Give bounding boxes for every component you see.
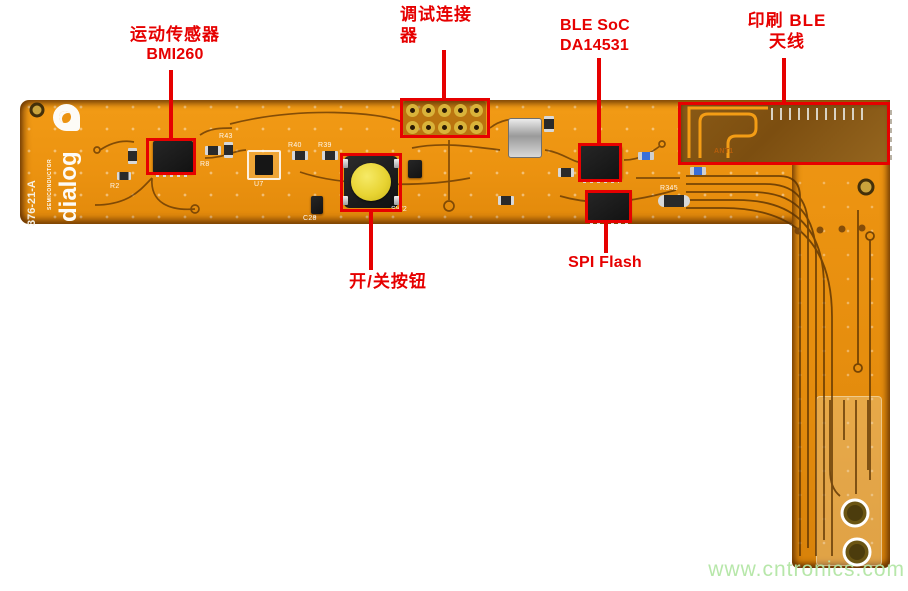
label-ble-soc-line1: BLE SoC <box>560 16 670 36</box>
label-printed-antenna-line1: 印刷 BLE <box>742 10 832 31</box>
leader-line-spi-flash <box>604 223 608 253</box>
smd-component <box>498 196 514 205</box>
smd-component <box>205 146 221 155</box>
label-debug-connector: 调试连接 器 <box>400 4 500 47</box>
highlight-box-antenna <box>678 102 890 165</box>
label-spi-flash-text: SPI Flash <box>550 253 660 273</box>
highlight-box-spi-flash <box>585 190 632 223</box>
silkscreen-ref: R40 <box>288 142 302 149</box>
leader-line-ble-soc <box>597 58 601 143</box>
smd-component <box>128 148 137 164</box>
leader-line-antenna <box>782 58 786 102</box>
site-watermark: www.cntronics.com <box>708 558 905 582</box>
silkscreen-ref: R43 <box>219 133 233 140</box>
smd-component <box>224 142 233 158</box>
label-motion-sensor: 运动传感器 BMI260 <box>110 24 240 65</box>
label-motion-sensor-line1: 运动传感器 <box>110 24 240 45</box>
small-ic-u7 <box>247 150 281 180</box>
label-spi-flash: SPI Flash <box>550 253 660 273</box>
crystal-component <box>508 118 542 158</box>
highlight-box-bmi260 <box>146 138 196 175</box>
label-printed-antenna: 印刷 BLE 天线 <box>742 10 832 53</box>
silkscreen-ref: R345 <box>660 185 678 192</box>
ic-die <box>255 155 273 175</box>
label-ble-soc-line2: DA14531 <box>560 36 670 56</box>
label-power-button-text: 开/关按钮 <box>328 271 448 292</box>
smd-component <box>544 116 554 132</box>
smd-component <box>292 151 308 160</box>
resistor-r345 <box>658 195 690 207</box>
dialog-logo-subtext: SEMICONDUCTOR <box>47 140 53 210</box>
dialog-logo-text: dialog <box>55 130 83 222</box>
pcb-trace-art <box>0 0 908 591</box>
highlight-box-debug-connector <box>400 98 490 138</box>
board-id-silkscreen: 376-21-A <box>26 150 38 226</box>
smd-component <box>117 172 131 180</box>
silkscreen-ref: R2 <box>110 183 120 190</box>
label-power-button: 开/关按钮 <box>328 271 448 292</box>
smd-capacitor-c28 <box>311 196 323 214</box>
dialog-logo-mark <box>53 104 80 131</box>
silkscreen-ref: R39 <box>318 142 332 149</box>
label-debug-connector-line2: 器 <box>400 25 500 46</box>
smd-capacitor <box>638 152 654 160</box>
label-motion-sensor-line2: BMI260 <box>110 45 240 65</box>
silkscreen-ref: C28 <box>303 215 317 222</box>
smd-component <box>558 168 574 177</box>
label-printed-antenna-line2: 天线 <box>742 31 832 52</box>
silkscreen-ref: U7 <box>254 181 264 188</box>
smd-component <box>322 151 338 160</box>
smd-capacitor <box>690 167 706 175</box>
smd-transistor <box>408 160 422 178</box>
leader-line-power-button <box>369 212 373 270</box>
annotated-pcb-image: dialog SEMICONDUCTOR 376-21-A <box>0 0 908 591</box>
label-ble-soc: BLE SoC DA14531 <box>560 16 670 56</box>
leader-line-bmi260 <box>169 70 173 138</box>
leader-line-debug-connector <box>442 50 446 98</box>
highlight-box-ble-soc <box>578 143 622 182</box>
highlight-box-power-button <box>340 153 402 212</box>
silkscreen-ref: R8 <box>200 161 210 168</box>
tail-stiffener <box>816 396 882 566</box>
label-debug-connector-line1: 调试连接 <box>400 4 500 25</box>
